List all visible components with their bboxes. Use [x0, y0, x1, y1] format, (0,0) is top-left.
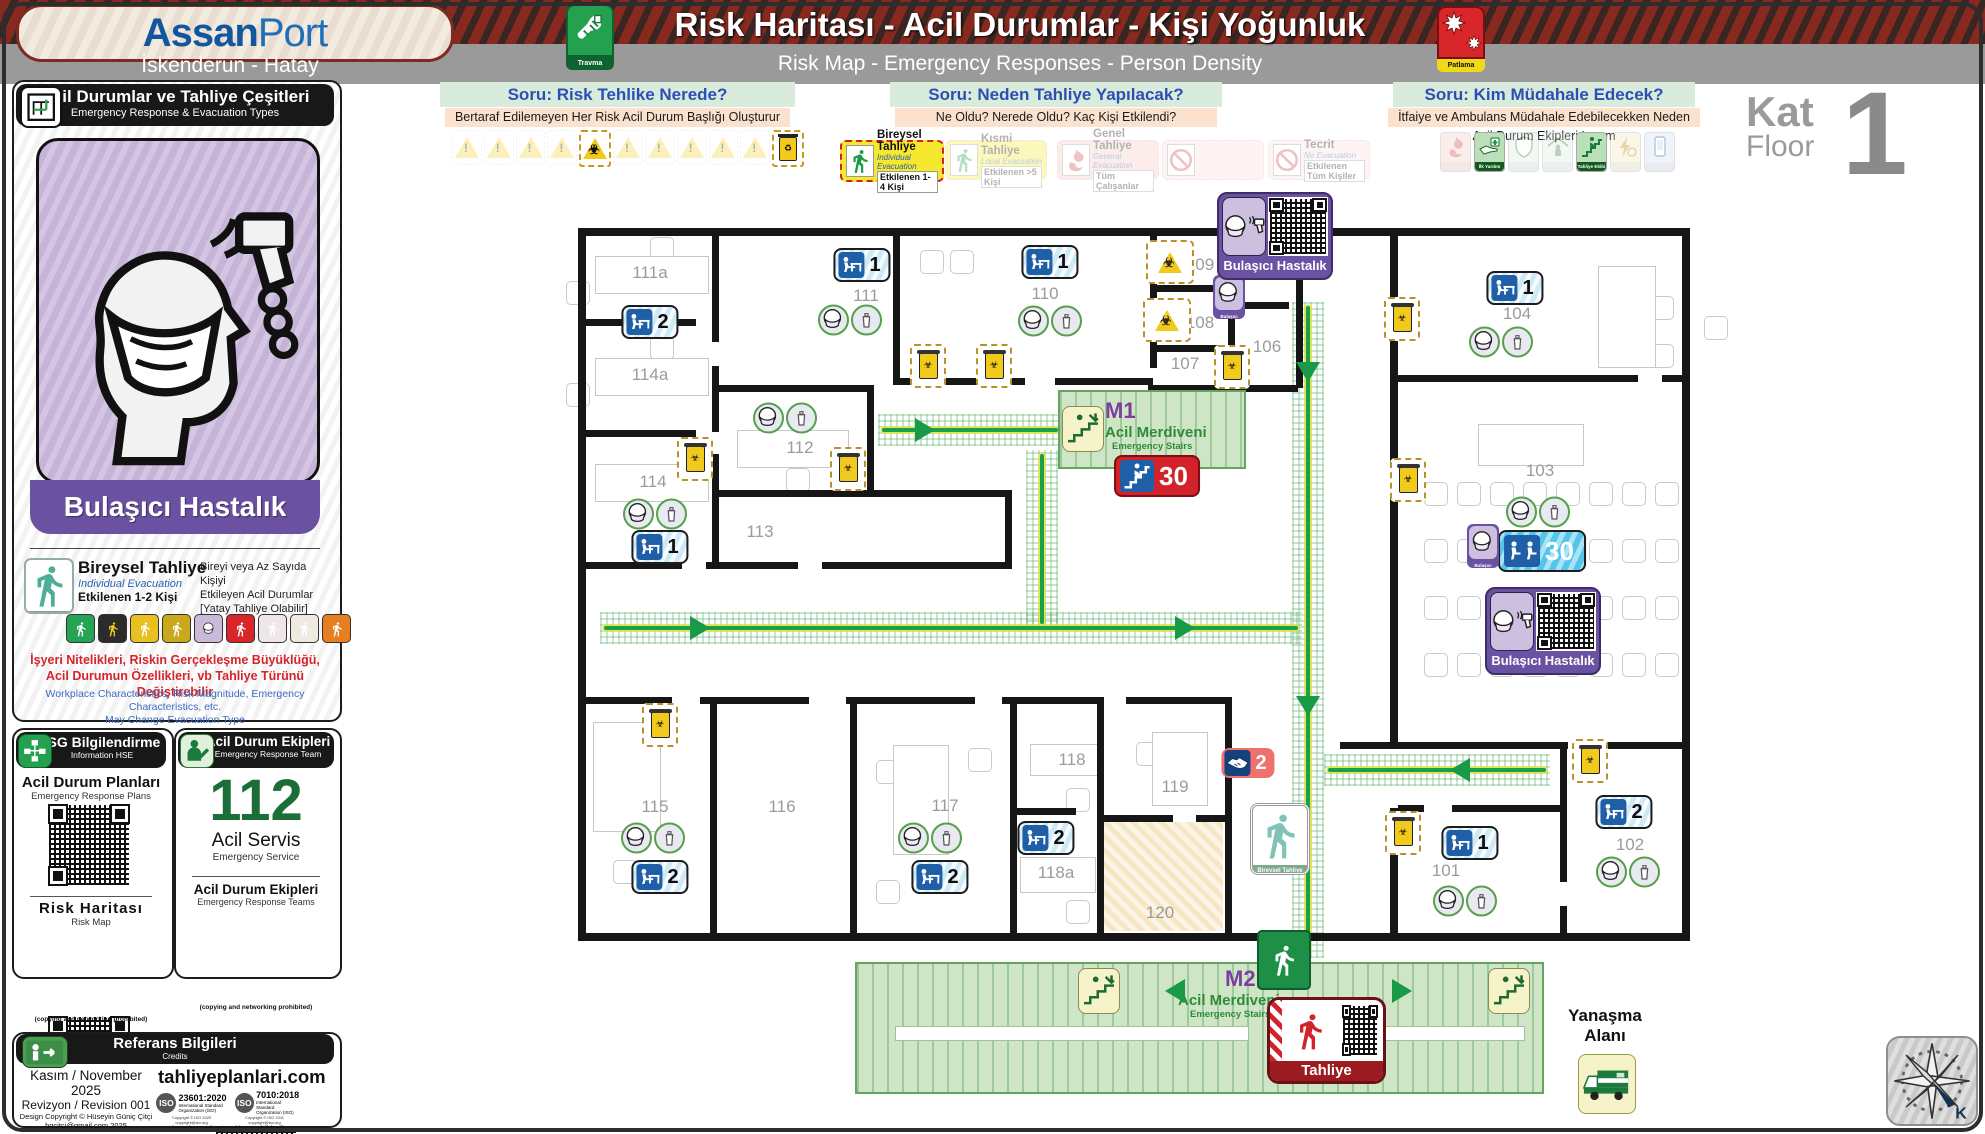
evacuation-arrow — [1438, 758, 1470, 782]
chair — [1457, 653, 1481, 677]
chair — [1589, 482, 1613, 506]
mask-required-icon — [1469, 327, 1500, 358]
chair — [1622, 596, 1646, 620]
evacuation-arrow — [690, 616, 722, 640]
biohazard-warning-icon — [1146, 240, 1194, 284]
medical-waste-bin-icon: ☣ — [642, 703, 678, 747]
sanitizer-bin-icon — [1466, 886, 1497, 917]
hygiene-pair-icon — [1506, 497, 1570, 528]
sanitizer-bin-icon — [786, 403, 817, 434]
wall — [1560, 742, 1567, 882]
ambulance-icon — [1578, 1054, 1636, 1114]
chair — [1066, 900, 1090, 924]
wall — [1560, 906, 1567, 941]
wall — [712, 366, 719, 432]
occupancy-badge: 1 — [1021, 245, 1078, 279]
medical-waste-bin-icon: ☣ — [677, 437, 713, 481]
travma-icon: Travma — [566, 4, 614, 70]
mask-required-icon — [1506, 497, 1537, 528]
wall — [893, 228, 900, 382]
room-label-113: 113 — [746, 522, 773, 542]
hygiene-pair-icon — [1596, 857, 1660, 888]
wall — [1452, 805, 1564, 812]
logo-bold: Assan — [143, 11, 258, 56]
chair — [1655, 539, 1679, 563]
mask-required-icon — [818, 305, 849, 336]
mask-required-icon — [621, 823, 652, 854]
wall — [1014, 808, 1076, 815]
wall — [1097, 815, 1173, 822]
room-label-111a: 111a — [632, 263, 667, 283]
m2-name-en: Emergency Stairs — [1190, 1009, 1270, 1020]
mask-required-icon — [623, 499, 654, 530]
stairs-down-icon — [1078, 968, 1120, 1014]
stairs-person-icon — [1120, 460, 1154, 492]
room-label-106: 106 — [1253, 337, 1281, 357]
bireysel-tahliye-badge: Bireysel Tahliye — [1250, 803, 1310, 875]
m1-name-en: Emergency Stairs — [1112, 441, 1192, 452]
medical-waste-bin-icon: ☣ — [830, 447, 866, 491]
wall — [578, 430, 696, 437]
mask-and-thermometer-icon — [1222, 197, 1266, 256]
room-label-102: 102 — [1616, 835, 1644, 855]
person-at-desk-icon — [916, 864, 942, 890]
evacuation-path-line — [882, 428, 1058, 432]
mask-required-icon — [898, 823, 929, 854]
wall — [1010, 697, 1017, 941]
wall — [712, 228, 719, 342]
page-title: Risk Haritası - Acil Durumlar - Kişi Yoğ… — [640, 6, 1400, 44]
m2-rail — [895, 1026, 1249, 1041]
sanitizer-bin-icon — [656, 499, 687, 530]
occupancy-badge: 2 — [631, 860, 688, 894]
room-label-115: 115 — [641, 797, 668, 817]
table — [1598, 266, 1656, 368]
mask-required-icon — [1596, 857, 1627, 888]
sanitizer-bin-icon — [1539, 497, 1570, 528]
hygiene-pair-icon — [1469, 327, 1533, 358]
stairs-down-icon — [1488, 968, 1530, 1014]
occupancy-badge: 2 — [1017, 821, 1074, 855]
poster: Assan Port İskenderun - Hatay Risk Harit… — [0, 0, 1985, 1134]
wall — [1682, 228, 1690, 941]
sanitizer-bin-icon — [851, 305, 882, 336]
wall — [867, 385, 874, 497]
m1-code: M1 — [1105, 398, 1136, 424]
infectious-disease-mini-badge: Bulaşıcı Hastalık — [1467, 524, 1499, 568]
wall — [1662, 375, 1690, 382]
meeting-persons-icon — [1504, 535, 1540, 567]
chair — [1622, 482, 1646, 506]
medical-waste-bin-icon: ☣ — [1214, 345, 1250, 389]
wall — [578, 933, 1264, 941]
sanitizer-bin-icon — [654, 823, 685, 854]
sanitizer-bin-icon — [931, 823, 962, 854]
wall — [712, 385, 872, 392]
hygiene-pair-icon — [623, 499, 687, 530]
room-label-119: 119 — [1161, 777, 1188, 797]
chair — [1424, 482, 1448, 506]
room-label-104: 104 — [1503, 304, 1531, 324]
medical-waste-bin-icon: ☣ — [910, 344, 946, 388]
wall — [1598, 742, 1690, 749]
medical-waste-bin-icon: ☣ — [1385, 811, 1421, 855]
room-label-116: 116 — [768, 797, 795, 817]
wall — [1126, 697, 1228, 704]
room-label-107: 107 — [1171, 354, 1199, 374]
mask-and-thermometer-icon — [1490, 592, 1534, 651]
evacuation-arrow — [1153, 979, 1185, 1003]
occupancy-badge: 1 — [833, 248, 890, 282]
evacuation-path-line — [1328, 768, 1546, 772]
chair — [1622, 653, 1646, 677]
sanitizer-bin-icon — [1502, 327, 1533, 358]
chair — [1655, 653, 1679, 677]
room-label-111: 111 — [853, 286, 879, 306]
infectious-disease-mini-badge: Bulaşıcı Hastalık — [1213, 275, 1245, 319]
qr-tahliye — [1341, 1004, 1379, 1057]
m1-name-tr: Acil Merdiveni — [1105, 424, 1207, 441]
svg-text:K: K — [1955, 1105, 1967, 1123]
wall — [1340, 742, 1568, 749]
wall — [712, 490, 1012, 497]
person-at-desk-icon — [1491, 275, 1517, 301]
person-at-desk-icon — [838, 252, 864, 278]
stairs-occupancy-badge: 30 — [1114, 455, 1200, 497]
sanitizer-bin-icon — [1629, 857, 1660, 888]
room-label-117: 117 — [931, 796, 958, 816]
person-at-desk-icon — [1026, 249, 1052, 275]
person-at-desk-icon — [636, 864, 662, 890]
qr-code — [1536, 592, 1596, 651]
person-at-desk-icon — [1600, 799, 1626, 825]
medical-waste-bin-icon: ☣ — [1384, 297, 1420, 341]
occupancy-badge: 1 — [631, 530, 688, 564]
mask-face-icon — [1469, 526, 1497, 559]
sanitizer-bin-icon — [1051, 306, 1082, 337]
chair — [1457, 482, 1481, 506]
berth-area-label: YanaşmaAlanı — [1560, 1006, 1650, 1046]
wall — [1055, 378, 1153, 385]
page-subtitle: Risk Map - Emergency Responses - Person … — [620, 52, 1420, 76]
assembly-occupancy-badge: 2 — [1221, 748, 1274, 778]
person-at-desk-icon — [636, 534, 662, 560]
wall — [1005, 490, 1012, 569]
evacuation-path-line — [1040, 454, 1044, 624]
medical-waste-bin-icon: ☣ — [1390, 458, 1426, 502]
logo-light: Port — [258, 11, 327, 56]
wall — [1196, 815, 1228, 822]
infectious-disease-qr-badge: Bulaşıcı Hastalık — [1217, 192, 1333, 280]
compass-icon: K — [1886, 1036, 1978, 1126]
room-label-112: 112 — [786, 438, 813, 458]
mask-required-icon — [1433, 886, 1464, 917]
wall — [578, 228, 586, 941]
emergency-exit-door-icon — [1257, 930, 1311, 990]
chair — [1589, 539, 1613, 563]
wall — [578, 228, 1690, 236]
evacuation-arrow — [1392, 979, 1424, 1003]
person-at-desk-icon — [1022, 825, 1048, 851]
room-label-118: 118 — [1058, 750, 1085, 770]
chair — [920, 250, 944, 274]
location: İskenderun - Hatay — [40, 54, 420, 78]
occupancy-badge: 1 — [1486, 271, 1543, 305]
occupancy-badge: 2 — [1595, 795, 1652, 829]
handshake-icon — [1224, 750, 1250, 776]
chair — [1655, 482, 1679, 506]
chair — [786, 468, 810, 492]
hygiene-pair-icon — [753, 403, 817, 434]
evacuation-arrow — [1296, 362, 1320, 394]
chair — [1622, 539, 1646, 563]
evacuation-arrow — [1175, 616, 1207, 640]
wall — [846, 697, 975, 704]
hygiene-pair-icon — [1433, 886, 1497, 917]
tahliye-exit-badge: Tahliye — [1267, 997, 1386, 1084]
mask-face-icon — [1215, 277, 1243, 310]
person-at-desk-icon — [1446, 830, 1472, 856]
occupancy-badge: 1 — [1441, 826, 1498, 860]
room-label-118a: 118a — [1038, 863, 1075, 883]
occupancy-badge: 2 — [621, 305, 678, 339]
chair — [1424, 596, 1448, 620]
chair — [1457, 596, 1481, 620]
m2-name-tr: Acil Merdiveni — [1178, 992, 1280, 1009]
m2-code: M2 — [1225, 966, 1256, 992]
chair — [876, 880, 900, 904]
biohazard-warning-icon — [1143, 298, 1191, 342]
meeting-occupancy-badge: 30 — [1498, 530, 1586, 572]
occupancy-badge: 2 — [911, 860, 968, 894]
patlama-icon: Patlama — [1437, 6, 1485, 72]
room-label-120: 120 — [1146, 903, 1174, 923]
room-label-101: 101 — [1432, 861, 1460, 881]
fire-exit-running-man-icon — [1282, 1000, 1337, 1061]
chair — [950, 250, 974, 274]
chair — [1704, 316, 1728, 340]
mask-required-icon — [1018, 306, 1049, 337]
wall — [706, 562, 798, 569]
chair — [968, 748, 992, 772]
hygiene-pair-icon — [621, 823, 685, 854]
chair — [1424, 539, 1448, 563]
room-label-110: 110 — [1031, 284, 1058, 304]
hygiene-pair-icon — [818, 305, 882, 336]
wall — [710, 697, 717, 941]
fire-stripe — [1270, 1000, 1282, 1061]
qr-code — [1268, 197, 1328, 256]
wall — [1304, 933, 1690, 941]
wall — [712, 454, 719, 569]
tahliye-label: Tahliye — [1270, 1061, 1383, 1081]
chair — [1655, 596, 1679, 620]
person-at-desk-icon — [626, 309, 652, 335]
medical-waste-bin-icon: ☣ — [976, 344, 1012, 388]
room-label-114a: 114a — [632, 365, 669, 385]
infectious-disease-qr-badge: Bulaşıcı Hastalık — [1485, 587, 1601, 675]
table — [1478, 424, 1584, 466]
wall — [822, 562, 1008, 569]
chair — [1424, 653, 1448, 677]
hygiene-pair-icon — [898, 823, 962, 854]
chair — [650, 336, 674, 360]
hygiene-pair-icon — [1018, 306, 1082, 337]
stairs-down-icon — [1062, 406, 1104, 452]
evacuation-arrow — [915, 418, 947, 442]
mask-required-icon — [753, 403, 784, 434]
room-label-103: 103 — [1526, 461, 1554, 481]
room-label-114: 114 — [639, 472, 666, 492]
medical-waste-bin-icon: ☣ — [1572, 739, 1608, 783]
wall — [850, 697, 857, 941]
evacuation-arrow — [1296, 696, 1320, 728]
wall — [1398, 375, 1638, 382]
